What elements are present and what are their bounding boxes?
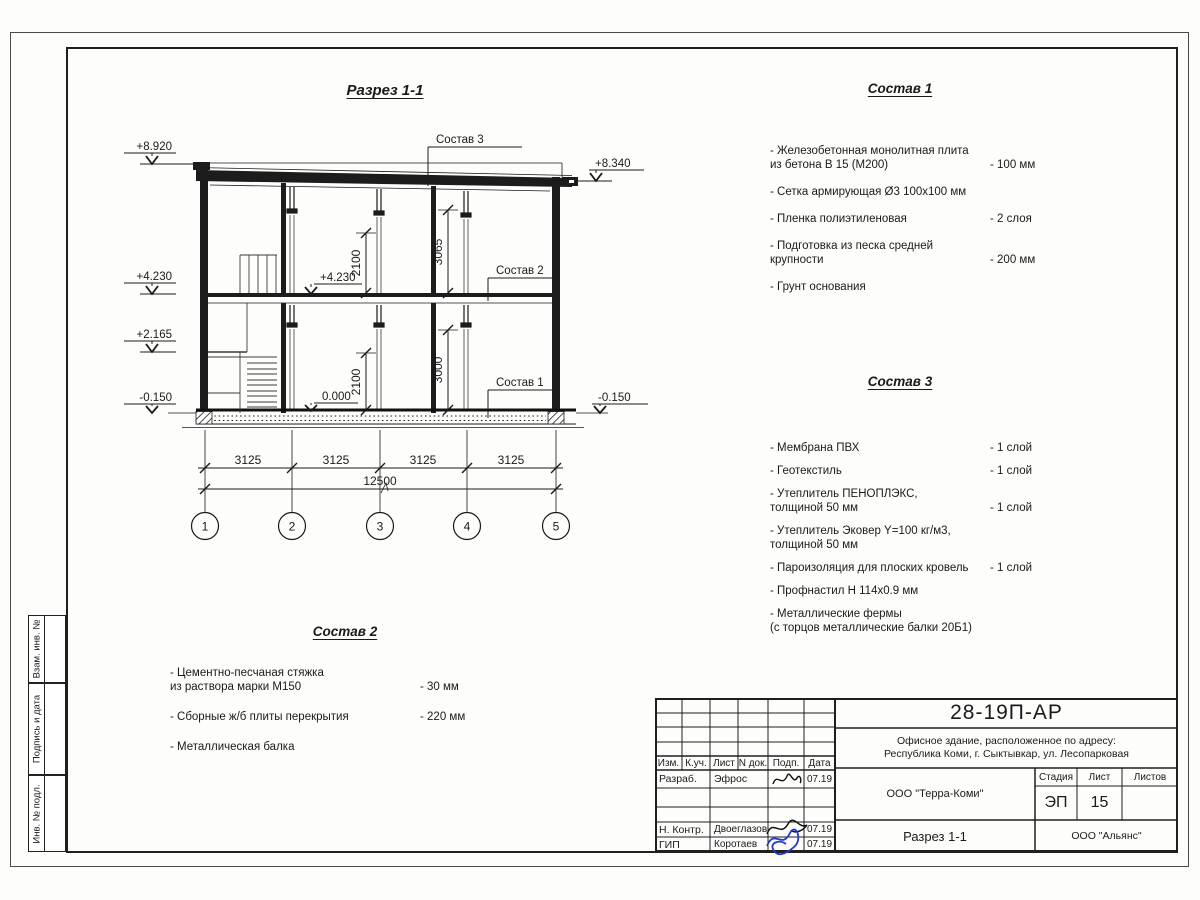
- list-item: - Железобетонная монолитная плита из бет…: [770, 144, 1070, 172]
- dim-label: 2100: [349, 249, 363, 276]
- sheet-label: Лист: [1077, 768, 1122, 786]
- elevation-mark-left-landing: +2.165: [124, 329, 176, 352]
- dim-label: 3000: [431, 356, 445, 383]
- list-item: - Утеплитель Эковер Y=100 кг/м3, толщино…: [770, 524, 1070, 552]
- tb-row1-name: Эфрос: [710, 770, 768, 788]
- list-item: - Подготовка из песка средней крупности …: [770, 239, 1070, 267]
- list-item: - Грунт основания: [770, 280, 1070, 294]
- composition-list-1: Состав 1 - Железобетонная монолитная пли…: [770, 82, 1070, 294]
- tb-row4-role: Н. Контр.: [655, 822, 710, 837]
- right-wall: [552, 177, 560, 417]
- list-item: - Металлическая балка: [170, 740, 500, 754]
- dim-label: 3065: [431, 238, 445, 265]
- sheets-total: [1122, 786, 1178, 820]
- list-item: - Утеплитель ПЕНОПЛЭКС, толщиной 50 мм -…: [770, 487, 1070, 515]
- tb-row4-name: Двоеглазов: [710, 822, 768, 837]
- roof-slab: [193, 162, 578, 191]
- tb-col-data: Дата: [804, 756, 835, 770]
- composition-3-title: Состав 3: [805, 375, 995, 389]
- tb-row5-role: ГИП: [655, 837, 710, 852]
- staircase: [208, 255, 277, 413]
- axis-bubbles: 1 2 3 4 5: [192, 513, 570, 540]
- list-item: - Сборные ж/б плиты перекрытия - 220 мм: [170, 710, 500, 724]
- dim-label: 2100: [349, 368, 363, 395]
- sheet-name: Разрез 1-1: [835, 820, 1035, 852]
- stamp-divider: [44, 616, 45, 682]
- composition-list-3: Состав 3 - Мембрана ПВХ - 1 слой - Геоте…: [770, 375, 1070, 635]
- list-item: - Профнастил Н 114х0.9 мм: [770, 584, 1070, 598]
- tb-col-kuch: К.уч.: [682, 756, 710, 770]
- side-stamp-vzam: Взам. инв. №: [28, 615, 66, 683]
- dim-label: 3125: [498, 453, 525, 467]
- leader-label: Состав 3: [436, 134, 484, 146]
- axis-number: 2: [289, 520, 296, 534]
- title-block: Изм. К.уч. Лист N док. Подп. Дата Разраб…: [655, 698, 1178, 852]
- tb-row4-date: 07.19: [804, 822, 835, 837]
- leader-label: Состав 2: [496, 265, 544, 277]
- slab-hatch-right: [548, 412, 564, 425]
- left-wall: [200, 168, 208, 417]
- list-item: - Цементно-песчаная стяжка из раствора м…: [170, 666, 500, 694]
- stage-value: ЭП: [1035, 786, 1077, 820]
- axis-extension-lines: [205, 430, 556, 512]
- floor-slab: [208, 293, 552, 303]
- ground-slab: [168, 410, 608, 428]
- elevation-label: +8.340: [595, 158, 631, 170]
- elevation-label: 0.000: [322, 391, 351, 403]
- composition-1-title: Состав 1: [805, 82, 995, 96]
- elevation-label: +2.165: [137, 329, 173, 341]
- stamp-divider: [44, 684, 45, 774]
- list-item: - Сетка армирующая Ø3 100х100 мм: [770, 185, 1070, 199]
- list-item: - Геотекстиль - 1 слой: [770, 464, 1070, 478]
- elevation-label: -0.150: [598, 392, 631, 404]
- elevation-mark-right-base: -0.150: [592, 392, 648, 413]
- tb-col-podp: Подп.: [768, 756, 804, 770]
- side-stamp-inv: Инв. № подл.: [28, 775, 66, 852]
- axis-number: 5: [553, 520, 560, 534]
- list-item: - Мембрана ПВХ - 1 слой: [770, 441, 1070, 455]
- contractor: ООО "Альянс": [1035, 820, 1178, 852]
- dim-label: 12500: [363, 474, 397, 488]
- sheets-label: Листов: [1122, 768, 1178, 786]
- elevation-mark-left-floor2: +4.230: [124, 271, 176, 294]
- tb-row1-date: 07.19: [804, 770, 835, 788]
- slab-hatch-left: [196, 412, 212, 425]
- side-stamp-label: Подпись и дата: [32, 695, 43, 763]
- elevation-mark-right-top: +8.340: [578, 158, 644, 181]
- drawing-sheet: Разрез 1-1: [0, 0, 1200, 900]
- document-code: 28-19П-АР: [835, 698, 1178, 728]
- side-stamp-label: Инв. № подл.: [32, 784, 43, 843]
- dimension-chain-total: 12500: [198, 474, 563, 494]
- stage-label: Стадия: [1035, 768, 1077, 786]
- tb-row5-date: 07.19: [804, 837, 835, 852]
- tb-col-izm: Изм.: [655, 756, 682, 770]
- vdim-floor2-opening: 2100: [349, 228, 376, 298]
- tb-row1-role: Разраб.: [655, 770, 710, 788]
- signature-efros: [773, 774, 801, 784]
- object-description: Офисное здание, расположенное по адресу:…: [840, 728, 1173, 768]
- dim-label: 3125: [410, 453, 437, 467]
- design-org: ООО "Терра-Коми": [835, 768, 1035, 820]
- axis-number: 4: [464, 520, 471, 534]
- axis-number: 1: [202, 520, 209, 534]
- elevation-label: +8.920: [137, 141, 173, 153]
- list-item: - Пленка полиэтиленовая - 2 слоя: [770, 212, 1070, 226]
- vdim-floor1-opening: 2100: [349, 348, 376, 415]
- elevation-label: -0.150: [139, 392, 172, 404]
- list-item: - Пароизоляция для плоских кровель - 1 с…: [770, 561, 1070, 575]
- dim-label: 3125: [235, 453, 262, 467]
- dim-label: 3125: [323, 453, 350, 467]
- sheet-number: 15: [1077, 786, 1122, 820]
- composition-list-2: Состав 2 - Цементно-песчаная стяжка из р…: [170, 625, 500, 754]
- leader-label: Состав 1: [496, 377, 544, 389]
- stamp-divider: [44, 776, 45, 851]
- dimension-chain-spans: 3125 3125 3125 3125: [198, 453, 563, 473]
- elevation-label: +4.230: [137, 271, 173, 283]
- composition-2-title: Состав 2: [245, 625, 445, 639]
- side-stamp-label: Взам. инв. №: [32, 620, 43, 679]
- elevation-mark-left-base: -0.150: [124, 392, 176, 413]
- axis-number: 3: [377, 520, 384, 534]
- tb-col-ndok: N док.: [738, 756, 768, 770]
- tb-col-list: Лист: [710, 756, 738, 770]
- tb-row5-name: Коротаев: [710, 837, 768, 852]
- elevation-mark-left-top: +8.920: [124, 141, 200, 164]
- section-drawing: +8.920 +4.230 +2.165 -0.150 +8.340: [100, 60, 660, 560]
- side-stamp-podpis: Подпись и дата: [28, 683, 66, 775]
- leader-ground-composition: Состав 1: [488, 377, 552, 418]
- list-item: - Металлические фермы (с торцов металлич…: [770, 607, 1070, 635]
